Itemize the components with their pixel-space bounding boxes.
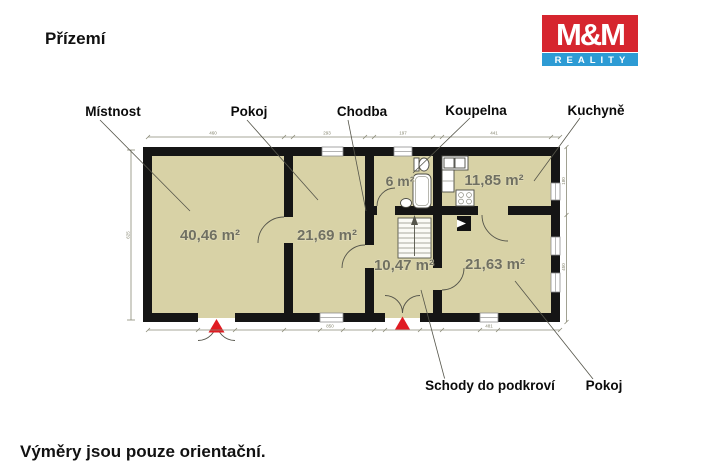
floorplan-page: Přízemí Výměry jsou pouze orientační. M&…: [0, 0, 702, 468]
dim-top-3: 197: [399, 131, 407, 136]
label-pokoj-top: Pokoj: [231, 104, 268, 119]
dim-bottom-1: 850: [326, 324, 334, 329]
dim-right-2: 450: [561, 263, 566, 271]
label-mistnost: Místnost: [85, 104, 141, 119]
label-chodba: Chodba: [337, 104, 388, 119]
dim-right-1: 180: [561, 177, 566, 185]
mm-reality-logo: M&M REALITY: [542, 15, 638, 66]
area-koupelna: 6 m²: [386, 173, 415, 189]
staircase: [398, 215, 431, 258]
stove-icon: [456, 190, 474, 206]
kitchen-sink-icon: [444, 158, 454, 168]
dim-top-2: 293: [323, 131, 331, 136]
label-schody: Schody do podkroví: [425, 378, 556, 393]
area-pokoj-top: 21,69 m²: [297, 227, 357, 244]
entrance-marker-icon: [395, 317, 410, 330]
logo-reality-text: REALITY: [555, 55, 631, 66]
dim-left-1: 625: [126, 231, 131, 239]
sink-icon: [401, 199, 412, 208]
area-kuchyne: 11,85 m²: [464, 172, 523, 189]
dim-bottom-2: 481: [485, 324, 493, 329]
dim-top-4: 441: [490, 131, 498, 136]
disclaimer-text: Výměry jsou pouze orientační.: [20, 442, 266, 461]
area-mistnost: 40,46 m²: [180, 227, 240, 244]
floorplan-image: Přízemí Výměry jsou pouze orientační. M&…: [0, 0, 702, 468]
label-kuchyne: Kuchyně: [567, 103, 625, 118]
label-pokoj-bottom: Pokoj: [586, 378, 623, 393]
area-pokoj-bottom: 21,63 m²: [465, 256, 525, 273]
area-chodba: 10,47 m²: [374, 257, 434, 274]
dim-top-1: 460: [209, 131, 217, 136]
label-koupelna: Koupelna: [445, 103, 507, 118]
page-title: Přízemí: [45, 29, 107, 48]
entrance-marker-icon: [209, 319, 225, 333]
logo-mm-text: M&M: [556, 17, 624, 52]
toilet-icon: [414, 158, 419, 171]
